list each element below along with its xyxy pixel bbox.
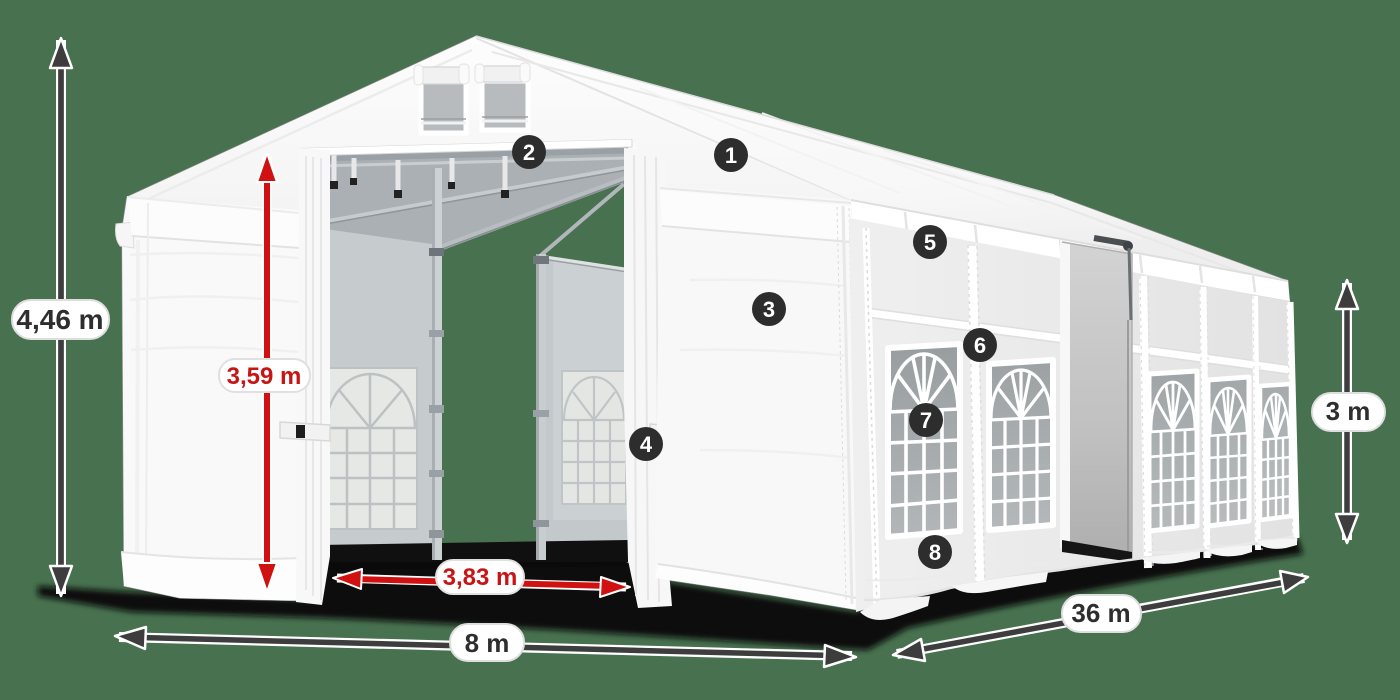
- svg-text:3 m: 3 m: [1326, 396, 1371, 426]
- svg-text:4: 4: [640, 432, 653, 457]
- svg-text:3,59 m: 3,59 m: [227, 363, 302, 390]
- svg-text:3: 3: [763, 297, 775, 322]
- svg-text:2: 2: [523, 140, 535, 165]
- svg-text:1: 1: [725, 143, 737, 168]
- svg-text:36 m: 36 m: [1071, 598, 1130, 628]
- svg-text:4,46 m: 4,46 m: [16, 304, 103, 335]
- svg-text:6: 6: [974, 333, 986, 358]
- svg-text:7: 7: [920, 408, 932, 433]
- svg-text:8 m: 8 m: [465, 628, 510, 658]
- svg-text:8: 8: [929, 540, 941, 565]
- svg-text:5: 5: [924, 230, 936, 255]
- svg-text:3,83 m: 3,83 m: [443, 564, 518, 591]
